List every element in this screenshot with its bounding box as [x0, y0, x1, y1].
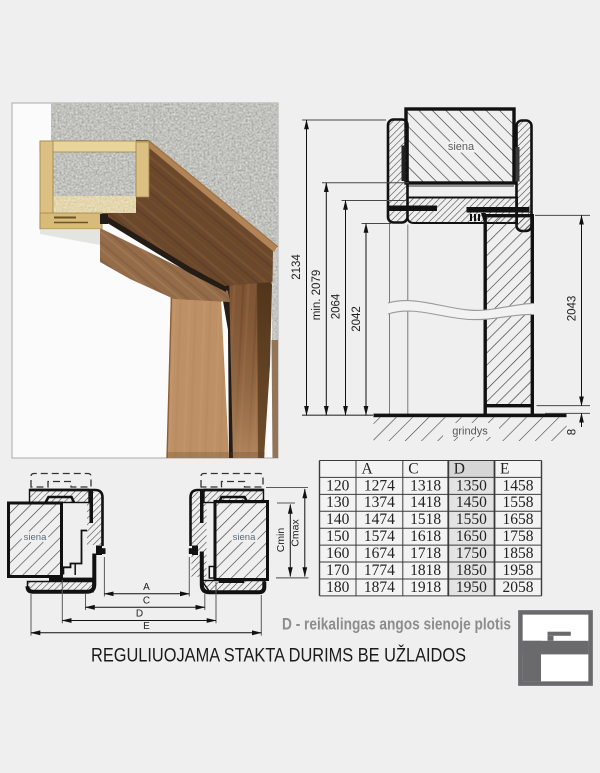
svg-text:REGULIUOJAMA STAKTA DURIMS BE: REGULIUOJAMA STAKTA DURIMS BE UŽLAIDOS	[91, 645, 466, 667]
svg-text:D: D	[454, 460, 465, 477]
svg-text:1718: 1718	[410, 545, 441, 562]
svg-text:1650: 1650	[456, 528, 487, 545]
svg-text:A: A	[362, 460, 374, 477]
svg-text:E: E	[143, 621, 150, 632]
svg-text:siena: siena	[448, 141, 475, 153]
svg-text:A: A	[143, 582, 150, 593]
svg-text:150: 150	[326, 528, 350, 545]
svg-text:1958: 1958	[503, 562, 534, 579]
svg-text:1350: 1350	[456, 477, 487, 494]
svg-text:1574: 1574	[364, 528, 395, 545]
svg-text:1474: 1474	[364, 511, 395, 528]
svg-text:1550: 1550	[456, 511, 487, 528]
svg-text:1558: 1558	[503, 494, 534, 511]
svg-text:grindys: grindys	[452, 426, 488, 438]
svg-text:min. 2079: min. 2079	[311, 270, 323, 321]
svg-text:1950: 1950	[456, 579, 487, 596]
svg-text:1318: 1318	[410, 477, 441, 494]
svg-text:D: D	[136, 609, 143, 620]
svg-text:1458: 1458	[503, 477, 534, 494]
svg-text:2134: 2134	[291, 254, 303, 280]
svg-text:2043: 2043	[566, 296, 578, 322]
svg-text:1850: 1850	[456, 562, 487, 579]
svg-text:2042: 2042	[351, 306, 363, 332]
svg-text:C: C	[143, 596, 150, 607]
svg-text:1758: 1758	[503, 528, 534, 545]
svg-text:1674: 1674	[364, 545, 395, 562]
svg-text:Cmax: Cmax	[290, 519, 302, 547]
svg-text:1774: 1774	[364, 562, 395, 579]
svg-text:1750: 1750	[456, 545, 487, 562]
svg-text:130: 130	[326, 494, 350, 511]
svg-text:1450: 1450	[456, 494, 487, 511]
svg-text:1418: 1418	[410, 494, 441, 511]
svg-text:120: 120	[326, 477, 350, 494]
svg-text:1618: 1618	[410, 528, 441, 545]
svg-text:1818: 1818	[410, 562, 441, 579]
svg-text:Cmin: Cmin	[275, 528, 287, 553]
svg-text:2064: 2064	[331, 293, 343, 319]
svg-text:1918: 1918	[410, 579, 441, 596]
svg-text:E: E	[500, 460, 509, 477]
svg-text:siena: siena	[24, 532, 47, 543]
svg-text:D - reikalingas angos sienoje: D - reikalingas angos sienoje plotis	[282, 615, 511, 634]
svg-text:160: 160	[326, 545, 350, 562]
svg-text:170: 170	[326, 562, 350, 579]
svg-text:1518: 1518	[410, 511, 441, 528]
svg-text:1374: 1374	[364, 494, 395, 511]
svg-text:2058: 2058	[503, 579, 534, 596]
svg-text:1274: 1274	[364, 477, 395, 494]
svg-text:1874: 1874	[364, 579, 395, 596]
svg-text:140: 140	[326, 511, 350, 528]
svg-text:1658: 1658	[503, 511, 534, 528]
svg-text:1858: 1858	[503, 545, 534, 562]
svg-text:8: 8	[567, 429, 579, 435]
svg-text:C: C	[408, 460, 418, 477]
svg-text:180: 180	[326, 579, 350, 596]
svg-text:siena: siena	[233, 532, 256, 543]
